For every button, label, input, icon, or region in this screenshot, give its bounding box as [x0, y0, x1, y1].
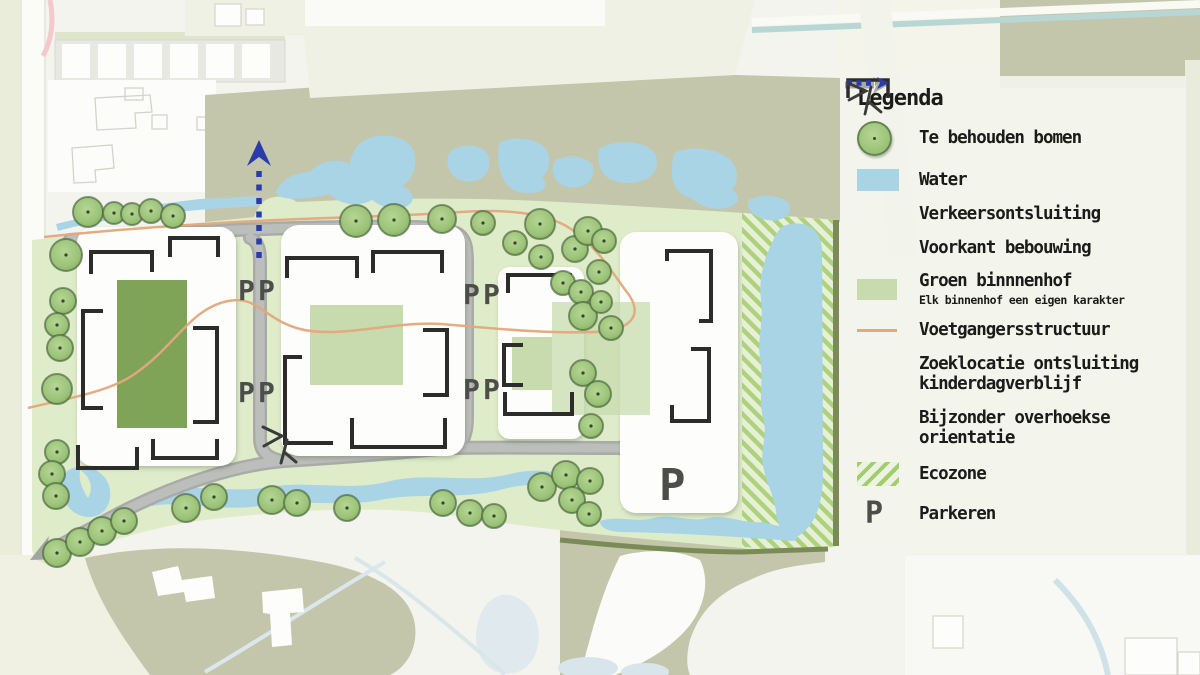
legend-title: Legenda — [857, 86, 1174, 111]
parking-marker: P — [483, 373, 500, 406]
site-plan-page: PPPPPPPPP Legenda Te behouden bomen Wate… — [0, 0, 1200, 675]
parking-icon: P — [857, 499, 883, 529]
courtyard-1 — [117, 280, 187, 428]
parking-marker: P — [463, 278, 480, 311]
legend-item-water: Water — [857, 169, 1174, 191]
legend-item-pedestrian: Voetgangersstructuur — [857, 320, 1174, 341]
parking-marker: P — [238, 376, 255, 409]
water-swatch-icon — [857, 169, 899, 191]
pedestrian-line-icon — [857, 329, 897, 332]
parking-marker: P — [238, 274, 255, 307]
parking-marker: P — [483, 278, 500, 311]
tree-icon — [857, 121, 892, 156]
parking-marker: P — [258, 274, 275, 307]
legend-item-traffic: Verkeersontsluiting — [857, 204, 1174, 225]
parking-marker: P — [258, 376, 275, 409]
ecozone-swatch-icon — [857, 462, 899, 486]
legend-item-parking: P Parkeren — [857, 499, 1174, 529]
parking-marker: P — [463, 373, 480, 406]
legend-item-courtyard: Groen binnnenhof Elk binnenhof een eigen… — [857, 271, 1174, 307]
courtyard-swatch-icon — [857, 279, 897, 300]
legend-item-diagonal: Bijzonder overhoekse orientatie — [857, 408, 1174, 449]
legend-item-trees: Te behouden bomen — [857, 121, 1174, 156]
legend-courtyard-note: Elk binnenhof een eigen karakter — [919, 293, 1125, 307]
courtyard-2 — [310, 305, 403, 385]
legend-item-daycare-access: Zoeklocatie ontsluiting kinderdagverblij… — [857, 354, 1174, 395]
legend-item-building-front: Voorkant bebouwing — [857, 238, 1174, 259]
legend-item-ecozone: Ecozone — [857, 462, 1174, 486]
parking-marker: P — [659, 460, 686, 511]
legend-panel: Legenda Te behouden bomen Water Verkeers… — [845, 76, 1186, 556]
